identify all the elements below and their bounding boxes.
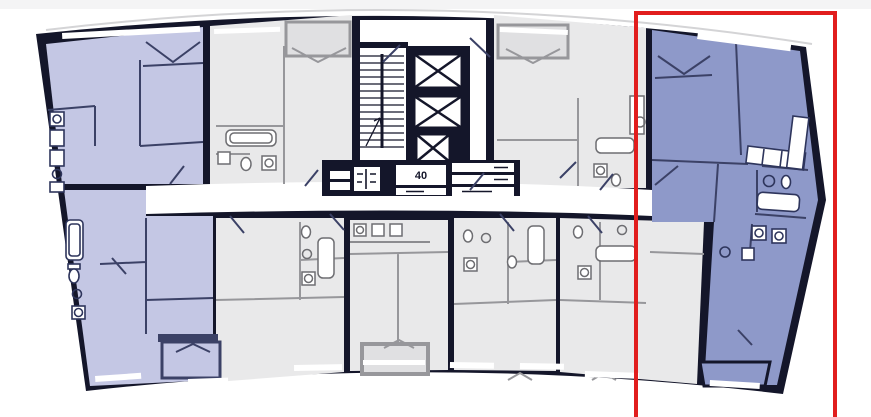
washer-icon: [772, 229, 786, 243]
bathtub-icon: [596, 246, 636, 261]
balcony-bottom-left: [158, 334, 220, 378]
stove-icon: [390, 224, 402, 236]
bathtub-icon: [318, 238, 334, 278]
top-band: [0, 0, 871, 9]
toilet-icon: [574, 226, 583, 238]
loggia-top-mid-left: [286, 22, 350, 62]
sink-icon: [218, 152, 230, 164]
bathtub-icon: [757, 192, 800, 212]
toilet-icon: [69, 269, 79, 283]
stove-icon: [50, 150, 64, 166]
floor-plan-svg: 40: [0, 0, 871, 417]
bathtub-icon: [596, 138, 634, 153]
toilet-icon: [782, 176, 791, 189]
elevator-icon-2: [414, 96, 462, 128]
core-room-number: 40: [415, 170, 427, 182]
sink-icon: [742, 248, 754, 260]
toilet-icon: [302, 226, 311, 238]
counter-icon: [50, 130, 64, 146]
sink-icon: [372, 224, 384, 236]
washer-icon: [262, 156, 276, 170]
elevator-icon-3: [416, 134, 450, 162]
washer-icon: [50, 112, 64, 126]
bathtub-icon: [528, 226, 544, 264]
floor-plan-page: 40: [0, 0, 871, 417]
core-vestibule-wall: [358, 42, 408, 48]
washer-icon: [752, 226, 766, 240]
balcony-bottom-center: [362, 340, 428, 374]
toilet-icon: [464, 230, 473, 242]
toilet-icon: [612, 174, 621, 186]
toilet-icon: [241, 158, 251, 171]
elevator-icon-1: [414, 54, 462, 88]
toilet-icon: [508, 256, 517, 268]
apartment-left-top[interactable]: [46, 27, 203, 184]
